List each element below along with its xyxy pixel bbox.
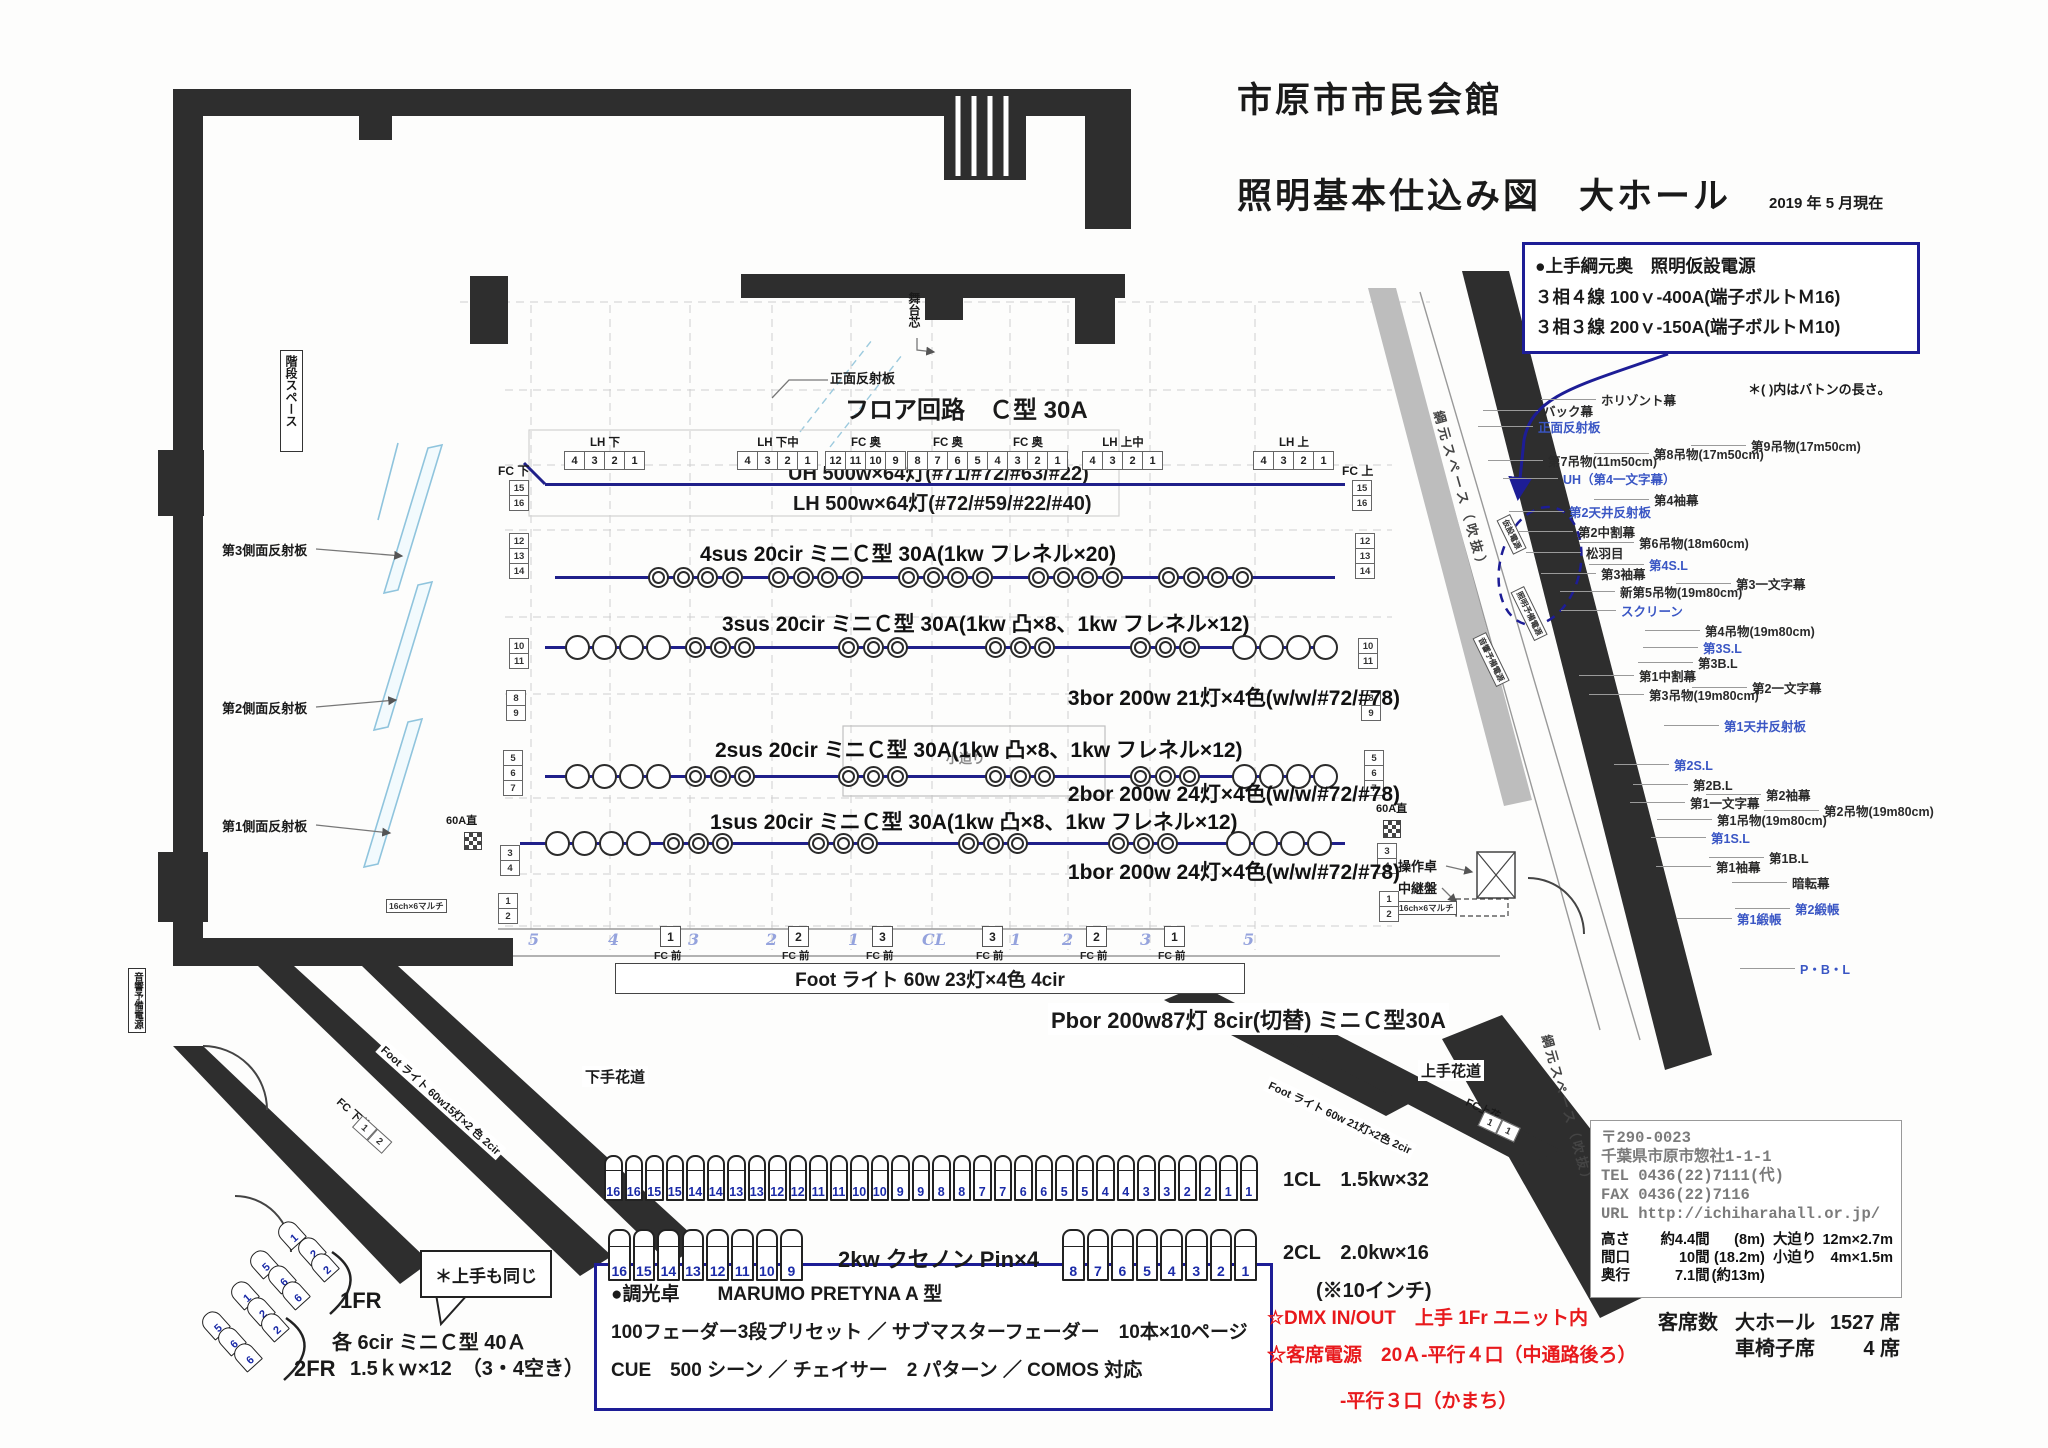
fresnel-symbol (1183, 567, 1204, 588)
dimmer-lamp: 13 (727, 1155, 746, 1201)
batten-leader (1561, 610, 1616, 611)
operator-console-label: 操作卓 (1398, 856, 1437, 875)
channel-cell: 10 (865, 451, 886, 470)
apron-mark: 1 (1010, 930, 1021, 949)
batten-label: 第2S.L (1614, 755, 1713, 774)
batten-label: スクリーン (1561, 601, 1683, 620)
side-reflector-shapes (364, 443, 442, 867)
sus-bar-label: 2sus 20cir ミニＣ型 30A(1kw 凸×8、1kw フレネル×12) (715, 734, 1243, 764)
fresnel-symbol (1102, 567, 1123, 588)
fresnel-symbol (722, 567, 743, 588)
channel-cells: 8765 (908, 451, 988, 470)
fresnel-symbol (697, 567, 718, 588)
fresnel-symbol (842, 567, 863, 588)
side-stack-cell: 12 (509, 533, 529, 549)
relay-panel-box (1456, 899, 1508, 916)
side-stack-cell: 2 (498, 908, 518, 924)
fresnel-symbol (985, 637, 1006, 658)
batten-leader (1478, 426, 1533, 427)
batten-leader (1483, 410, 1538, 411)
side-stack-cell: 1 (498, 893, 518, 909)
fresnel-symbol (685, 637, 706, 658)
fc-front-caption: FC 前 (1080, 948, 1107, 963)
pc-spot-symbol (592, 635, 617, 660)
pc-spot-symbol (565, 764, 590, 789)
lighting-plot-page: 市原市市民会館 照明基本仕込み図 大ホール 2019 年 5 月現在 ●上手綱元… (0, 0, 2048, 1448)
fc-front-box: 3 (982, 926, 1003, 947)
batten-leader (1541, 573, 1596, 574)
venue-fax: FAX 0436(22)7116 (1601, 1186, 1893, 1205)
dimmer-lamp: 9 (780, 1229, 803, 1281)
fresnel-symbol (1053, 567, 1074, 588)
fresnel-symbol (983, 833, 1004, 854)
side-stack-cell: 6 (503, 765, 523, 781)
batten-leader (1645, 630, 1700, 631)
side-stack-cell: 10 (509, 638, 529, 654)
batten-name: P・B・L (1800, 959, 1850, 978)
channel-cell: 4 (564, 451, 585, 470)
seat-power-note: ☆客席電源 20Ａ-平行４口（中通路後ろ） (1267, 1340, 1636, 1367)
batten-label: 第1S.L (1651, 828, 1750, 847)
dmx-note: ☆DMX IN/OUT 上手 1Fr ユニット内 (1267, 1303, 1588, 1330)
channel-group: FC 奥4321 (988, 434, 1068, 470)
dimmer-lamp: 16 (604, 1155, 623, 1201)
batten-label: 第1天井反射板 (1664, 716, 1806, 735)
spec-cell: 約4.4間 (1640, 1231, 1709, 1249)
fresnel-symbol (947, 567, 968, 588)
spec-cell: (約13m) (1710, 1267, 1765, 1285)
fresnel-symbol (887, 766, 908, 787)
batten-length-note: ＊( )内はバトンの長さ。 (1748, 379, 1891, 398)
fresnel-symbol (887, 637, 908, 658)
fresnel-symbol (1028, 567, 1049, 588)
spec-cell: 4m×1.5m (1816, 1249, 1893, 1267)
dimmer-lamp: 4 (1096, 1155, 1115, 1201)
fresnel-symbol (1232, 567, 1253, 588)
pc-spot-symbol (1286, 635, 1311, 660)
fresnel-symbol (712, 833, 733, 854)
sus-bar-label: 1sus 20cir ミニＣ型 30A(1kw 凸×8、1kw フレネル×12) (710, 806, 1238, 836)
channel-cell: 5 (967, 451, 988, 470)
channel-cell: 8 (907, 451, 928, 470)
channel-group-label: FC 奥 (908, 434, 988, 450)
spec-cell: 10間 (1640, 1249, 1709, 1267)
dimmer-lamp: 14 (686, 1155, 705, 1201)
fresnel-symbol (1179, 637, 1200, 658)
dimmer-lamp: 6 (1111, 1229, 1134, 1281)
channel-cell: 1 (1313, 451, 1334, 470)
batten-leader (1677, 918, 1732, 919)
apron-mark: 5 (1243, 930, 1254, 949)
temp-power-line2: ３相４線 100ｖ-400A(端子ボルトＭ16) (1535, 282, 1907, 313)
channel-group: LH 上中4321 (1083, 434, 1163, 470)
batten-name: 第3一文字幕 (1736, 574, 1805, 593)
channel-cell: 2 (1122, 451, 1143, 470)
fresnel-symbol (710, 637, 731, 658)
channel-cell: 4 (987, 451, 1008, 470)
side-stack-cell: 11 (509, 653, 529, 669)
dimmer-lamp: 12 (706, 1229, 729, 1281)
channel-cell: 1 (1047, 451, 1068, 470)
apron-mark: 5 (528, 930, 539, 949)
channel-cells: 1211109 (826, 451, 906, 470)
batten-label: 第3袖幕 (1541, 564, 1645, 583)
dimmer-lamp: 4 (1160, 1229, 1183, 1281)
side-stack-cell: 10 (1358, 638, 1378, 654)
batten-name: 第8吊物(17m50cm) (1654, 444, 1764, 463)
fresnel-symbol (1034, 637, 1055, 658)
channel-group-label: LH 上 (1254, 434, 1334, 450)
dimmer-lamp: 15 (633, 1229, 656, 1281)
channel-cell: 4 (1082, 451, 1103, 470)
batten-name: 第2天井反射板 (1569, 502, 1651, 521)
fresnel-symbol (734, 766, 755, 787)
fresnel-symbol (710, 766, 731, 787)
side-stack-cell: 9 (506, 705, 526, 721)
revision-date: 2019 年 5 月現在 (1769, 192, 1883, 213)
pc-spot-symbol (1232, 635, 1257, 660)
fc-front-caption: FC 前 (976, 948, 1003, 963)
side-stack-cell: 3 (500, 845, 520, 861)
side-stack-cell: 14 (1355, 563, 1375, 579)
spec-row: 間口10間(18.2m)小迫り4m×1.5m (1601, 1249, 1893, 1267)
fc-front-box: 1 (660, 926, 681, 947)
batten-label: UH（第4一文字幕） (1503, 469, 1676, 488)
dimmer-lamp: 10 (756, 1229, 779, 1281)
same-stageright-bubble: ＊上手も同じ (420, 1250, 552, 1298)
batten-name: 第1天井反射板 (1724, 716, 1806, 735)
fresnel-symbol (833, 833, 854, 854)
batten-name: 第1S.L (1711, 828, 1750, 847)
fr-note2: 1.5ｋｗ×12 （3・4空き） (350, 1352, 584, 1381)
batten-name: スクリーン (1621, 601, 1683, 620)
pc-spot-symbol (565, 635, 590, 660)
apron-mark: CL (922, 930, 946, 949)
batten-name: 第7吊物(11m50cm) (1548, 451, 1657, 470)
fresnel-symbol (1010, 637, 1031, 658)
dimmer-lamp: 16 (625, 1155, 644, 1201)
batten-leader (1633, 784, 1688, 785)
channel-cell: 2 (1293, 451, 1314, 470)
dimmer-lamp: 12 (768, 1155, 787, 1201)
fc-front-caption: FC 前 (1158, 948, 1185, 963)
dimmer-lamp: 5 (1055, 1155, 1074, 1201)
fresnel-symbol (1108, 833, 1129, 854)
venue-title: 市原市市民会館 (1237, 72, 1503, 123)
fader-row1-label: 1CL 1.5kw×32 (1283, 1163, 1429, 1192)
channel-cells: 4321 (565, 451, 645, 470)
channel-cell: 11 (845, 451, 866, 470)
dimmer-lamp: 7 (994, 1155, 1013, 1201)
fc-front-caption: FC 前 (654, 948, 681, 963)
side-stack-left: 12 (498, 894, 518, 924)
fresnel-symbol (838, 637, 859, 658)
side-stack-cell: 8 (506, 690, 526, 706)
channel-group: LH 上4321 (1254, 434, 1334, 470)
dimmer-lamp: 3 (1137, 1155, 1156, 1201)
batten-name: 正面反射板 (1538, 417, 1601, 436)
fc-front-box: 1 (1164, 926, 1185, 947)
fc-front-caption: FC 前 (866, 948, 893, 963)
dimmer-lamp: 12 (789, 1155, 808, 1201)
pc-spot-symbol (592, 764, 617, 789)
fresnel-symbol (685, 766, 706, 787)
channel-cell: 1 (797, 451, 818, 470)
fresnel-symbol (863, 766, 884, 787)
venue-tel: TEL 0436(22)7111(代) (1601, 1167, 1893, 1186)
fc-front-box: 3 (872, 926, 893, 947)
side-stack-cell: 16 (509, 495, 529, 511)
batten-leader (1614, 764, 1669, 765)
pc-spot-symbol (1226, 831, 1251, 856)
batten-name: 第2S.L (1674, 755, 1713, 774)
seat-power-note2: -平行３口（かまち） (1340, 1386, 1517, 1413)
channel-group-label: LH 下 (565, 434, 645, 450)
bubble-tail (436, 1294, 468, 1324)
batten-leader (1732, 882, 1787, 883)
batten-leader (1589, 694, 1644, 695)
dimmer-lamp: 11 (809, 1155, 828, 1201)
channel-group-label: LH 上中 (1083, 434, 1163, 450)
side-stack-right: 12 (1379, 892, 1399, 922)
venue-postal: 〒290-0023 (1601, 1129, 1893, 1148)
batten-leader (1488, 460, 1543, 461)
batten-leader (1740, 968, 1795, 969)
spec-cell: 大迫り (1765, 1231, 1817, 1249)
batten-leader (1638, 662, 1693, 663)
pc-spot-symbol (626, 831, 651, 856)
batten-name: 第2緞帳 (1795, 899, 1839, 918)
console-line1: ●調光卓 MARUMO PRETYNA A 型 (611, 1276, 1256, 1314)
bor-label: 1bor 200w 24灯×4色(w/w/#72/#78) (1068, 856, 1400, 886)
channel-group-label: FC 奥 (826, 434, 906, 450)
wheelchair-label: 車椅子席 (1735, 1332, 1815, 1361)
fresnel-symbol (958, 833, 979, 854)
hall-label: 大ホール (1735, 1306, 1815, 1335)
dimmer-lamp: 9 (912, 1155, 931, 1201)
dimmer-lamp: 10 (850, 1155, 869, 1201)
batten-label: 正面反射板 (1478, 417, 1601, 436)
batten-label: 第2天井反射板 (1509, 502, 1651, 521)
batten-name: 第6吊物(18m60cm) (1639, 533, 1749, 552)
channel-group-label: FC 奥 (988, 434, 1068, 450)
batten-label: 新第5吊物(19m80cm) (1560, 582, 1742, 601)
spec-cell: 奥行 (1601, 1267, 1640, 1285)
fresnel-symbol (1158, 567, 1179, 588)
hanamichi-right-label: 上手花道 (1418, 1060, 1484, 1081)
fc-down-label: FC 下 (498, 462, 529, 479)
apron-mark: 4 (608, 930, 619, 949)
side-stack-cell: 14 (509, 563, 529, 579)
sus-bar-label: 4sus 20cir ミニＣ型 30A(1kw フレネル×20) (700, 538, 1116, 568)
dimmer-lamp: 14 (657, 1229, 680, 1281)
batten-label: 第7吊物(11m50cm) (1488, 451, 1657, 470)
temp-power-line1: ●上手綱元奥 照明仮設電源 (1535, 251, 1907, 282)
side-stack-left: 89 (506, 691, 526, 721)
dimmer-lamp: 5 (1076, 1155, 1095, 1201)
spec-cell: 間口 (1601, 1249, 1640, 1267)
dimmer-lamp: 13 (748, 1155, 767, 1201)
drawing-title: 照明基本仕込み図 大ホール (1237, 168, 1731, 219)
batten-leader (1579, 675, 1634, 676)
side-stack-cell: 11 (1358, 653, 1378, 669)
spec-row: 奥行7.1間(約13m) (1601, 1267, 1893, 1285)
channel-cell: 7 (927, 451, 948, 470)
pc-spot-symbol (1307, 831, 1332, 856)
dimmer-lamp: 8 (932, 1155, 951, 1201)
batten-name: 第4袖幕 (1654, 490, 1698, 509)
spec-cell: (18.2m) (1710, 1249, 1765, 1267)
batten-name: 第3B.L (1698, 653, 1738, 672)
a60-right-outlet (1383, 820, 1401, 838)
pc-spot-symbol (599, 831, 624, 856)
side-stack-cell: 15 (1352, 480, 1372, 496)
stage-center-label: 舞台芯 (906, 292, 923, 328)
bor-label: 2bor 200w 24灯×4色(w/w/#72/#78) (1068, 778, 1400, 808)
temp-power-line3: ３相３線 200ｖ-150A(端子ボルトＭ10) (1535, 312, 1907, 343)
channel-group: LH 下4321 (565, 434, 645, 470)
fresnel-symbol (808, 833, 829, 854)
fader-row2-label: 2CL 2.0kw×16 (1283, 1236, 1429, 1265)
channel-cell: 3 (584, 451, 605, 470)
channel-cells: 4321 (738, 451, 818, 470)
batten-name: 第3吊物(19m80cm) (1649, 685, 1759, 704)
channel-cell: 2 (604, 451, 625, 470)
dimmer-lamp: 2 (1199, 1155, 1218, 1201)
fresnel-symbol (1207, 567, 1228, 588)
venue-url: URL http://ichiharahall.or.jp/ (1601, 1205, 1893, 1224)
fresnel-symbol (648, 567, 669, 588)
fresnel-symbol (923, 567, 944, 588)
fc-front-box: 2 (788, 926, 809, 947)
batten-label: 第1吊物(19m80cm) (1657, 810, 1827, 829)
batten-leader (1630, 802, 1685, 803)
batten-leader (1664, 725, 1719, 726)
spec-row: 高さ約4.4間(8m)大迫り12m×2.7m (1601, 1231, 1893, 1249)
side-stack-left: 34 (500, 846, 520, 876)
fresnel-symbol (1155, 637, 1176, 658)
batten-label: 暗転幕 (1732, 873, 1830, 892)
pc-spot-symbol (619, 635, 644, 660)
channel-cell: 2 (777, 451, 798, 470)
dimmer-lamp: 2 (1178, 1155, 1197, 1201)
side-stack-left: 567 (503, 751, 523, 796)
batten-leader (1651, 837, 1706, 838)
pc-spot-symbol (1280, 831, 1305, 856)
dimmer-lamp: 8 (953, 1155, 972, 1201)
dimmer-lamp: 6 (1014, 1155, 1033, 1201)
fresnel-symbol (1007, 833, 1028, 854)
spec-cell: 高さ (1601, 1231, 1640, 1249)
temp-power-box: ●上手綱元奥 照明仮設電源 ３相４線 100ｖ-400A(端子ボルトＭ16) ３… (1522, 242, 1920, 354)
pc-spot-symbol (1313, 635, 1338, 660)
channel-cell: 12 (825, 451, 846, 470)
batten-name: 第2吊物(19m80cm) (1824, 801, 1934, 820)
fr1-label: 1FR (340, 1288, 382, 1314)
side-stack-left: 1516 (509, 481, 529, 511)
fresnel-symbol (857, 833, 878, 854)
pc-spot-symbol (1259, 635, 1284, 660)
fr-note1: 各 6cir ミニＣ型 40Ａ (332, 1326, 527, 1355)
pc-spot-symbol (572, 831, 597, 856)
hanamichi-left-label: 下手花道 (582, 1066, 648, 1087)
relay-panel-label: 中継盤 (1398, 878, 1437, 897)
console-line3: CUE 500 シーン ／ チェイサー 2 パターン ／ COMOS 対応 (611, 1352, 1256, 1390)
spec-cell: (8m) (1710, 1231, 1765, 1249)
side-stack-cell: 13 (509, 548, 529, 564)
fresnel-symbol (838, 766, 859, 787)
hall-seat-count: 1527 席 (1808, 1306, 1900, 1335)
batten-leader (1657, 819, 1712, 820)
apron-mark: 2 (1062, 930, 1073, 949)
side-reflector-2-label: 第2側面反射板 (222, 698, 307, 717)
batten-leader (1656, 866, 1711, 867)
side-reflector-1-label: 第1側面反射板 (222, 816, 307, 835)
apron-mark: 2 (766, 930, 777, 949)
lh-bar-label: LH 500w×64灯(#72/#59/#22/#40) (793, 487, 1092, 516)
fresnel-symbol (972, 567, 993, 588)
apron-mark: 1 (848, 930, 859, 949)
a60-left-outlet (464, 832, 482, 850)
batten-name: 第3袖幕 (1601, 564, 1645, 583)
side-reflector-3-label: 第3側面反射板 (222, 540, 307, 559)
xenon-pin-label: 2kw クセノン Pin×4 (838, 1242, 1039, 1274)
spec-cell: 小迫り (1765, 1249, 1817, 1267)
side-stack-cell: 13 (1355, 548, 1375, 564)
batten-name: UH（第4一文字幕） (1563, 469, 1676, 488)
channel-cell: 3 (1007, 451, 1028, 470)
side-stack-cell: 1 (1379, 891, 1399, 907)
channel-cell: 1 (624, 451, 645, 470)
dimmer-lamp: 16 (608, 1229, 631, 1281)
multi-left-label: 16ch×6マルチ (386, 899, 447, 913)
dimmer-lamp: 7 (1087, 1229, 1110, 1281)
fr2-label: 2FR (294, 1356, 336, 1382)
dimmer-lamp: 11 (731, 1229, 754, 1281)
pc-spot-symbol (646, 635, 671, 660)
side-stack-cell: 15 (509, 480, 529, 496)
batten-label: P・B・L (1740, 959, 1850, 978)
dimmer-lamp: 3 (1158, 1155, 1177, 1201)
fresnel-symbol (768, 567, 789, 588)
channel-cell: 9 (885, 451, 906, 470)
batten-label: 第1緞帳 (1677, 909, 1781, 928)
side-stack-cell: 12 (1355, 533, 1375, 549)
channel-cells: 4321 (988, 451, 1068, 470)
stage-specs: 高さ約4.4間(8m)大迫り12m×2.7m間口10間(18.2m)小迫り4m×… (1601, 1231, 1893, 1285)
fresnel-symbol (1130, 637, 1151, 658)
spec-cell: 12m×2.7m (1816, 1231, 1893, 1249)
side-stack-right: 121314 (1355, 534, 1375, 579)
channel-cell: 2 (1027, 451, 1048, 470)
fresnel-symbol (1034, 766, 1055, 787)
side-stack-right: 1516 (1352, 481, 1372, 511)
batten-leader (1509, 511, 1564, 512)
channel-group: FC 奥1211109 (826, 434, 906, 470)
fresnel-symbol (1157, 833, 1178, 854)
venue-address: 千葉県市原市惣社1-1-1 (1601, 1148, 1893, 1167)
side-stack-cell: 4 (500, 860, 520, 876)
dimmer-lamp: 4 (1117, 1155, 1136, 1201)
side-stack-cell: 2 (1379, 906, 1399, 922)
batten-label: 第3吊物(19m80cm) (1589, 685, 1759, 704)
batten-name: 第1B.L (1769, 848, 1809, 867)
spec-cell: 7.1間 (1640, 1267, 1709, 1285)
fresnel-symbol (1010, 766, 1031, 787)
fresnel-symbol (673, 567, 694, 588)
dimmer-lamp: 2 (1210, 1229, 1233, 1281)
dimmer-lamp: 9 (891, 1155, 910, 1201)
